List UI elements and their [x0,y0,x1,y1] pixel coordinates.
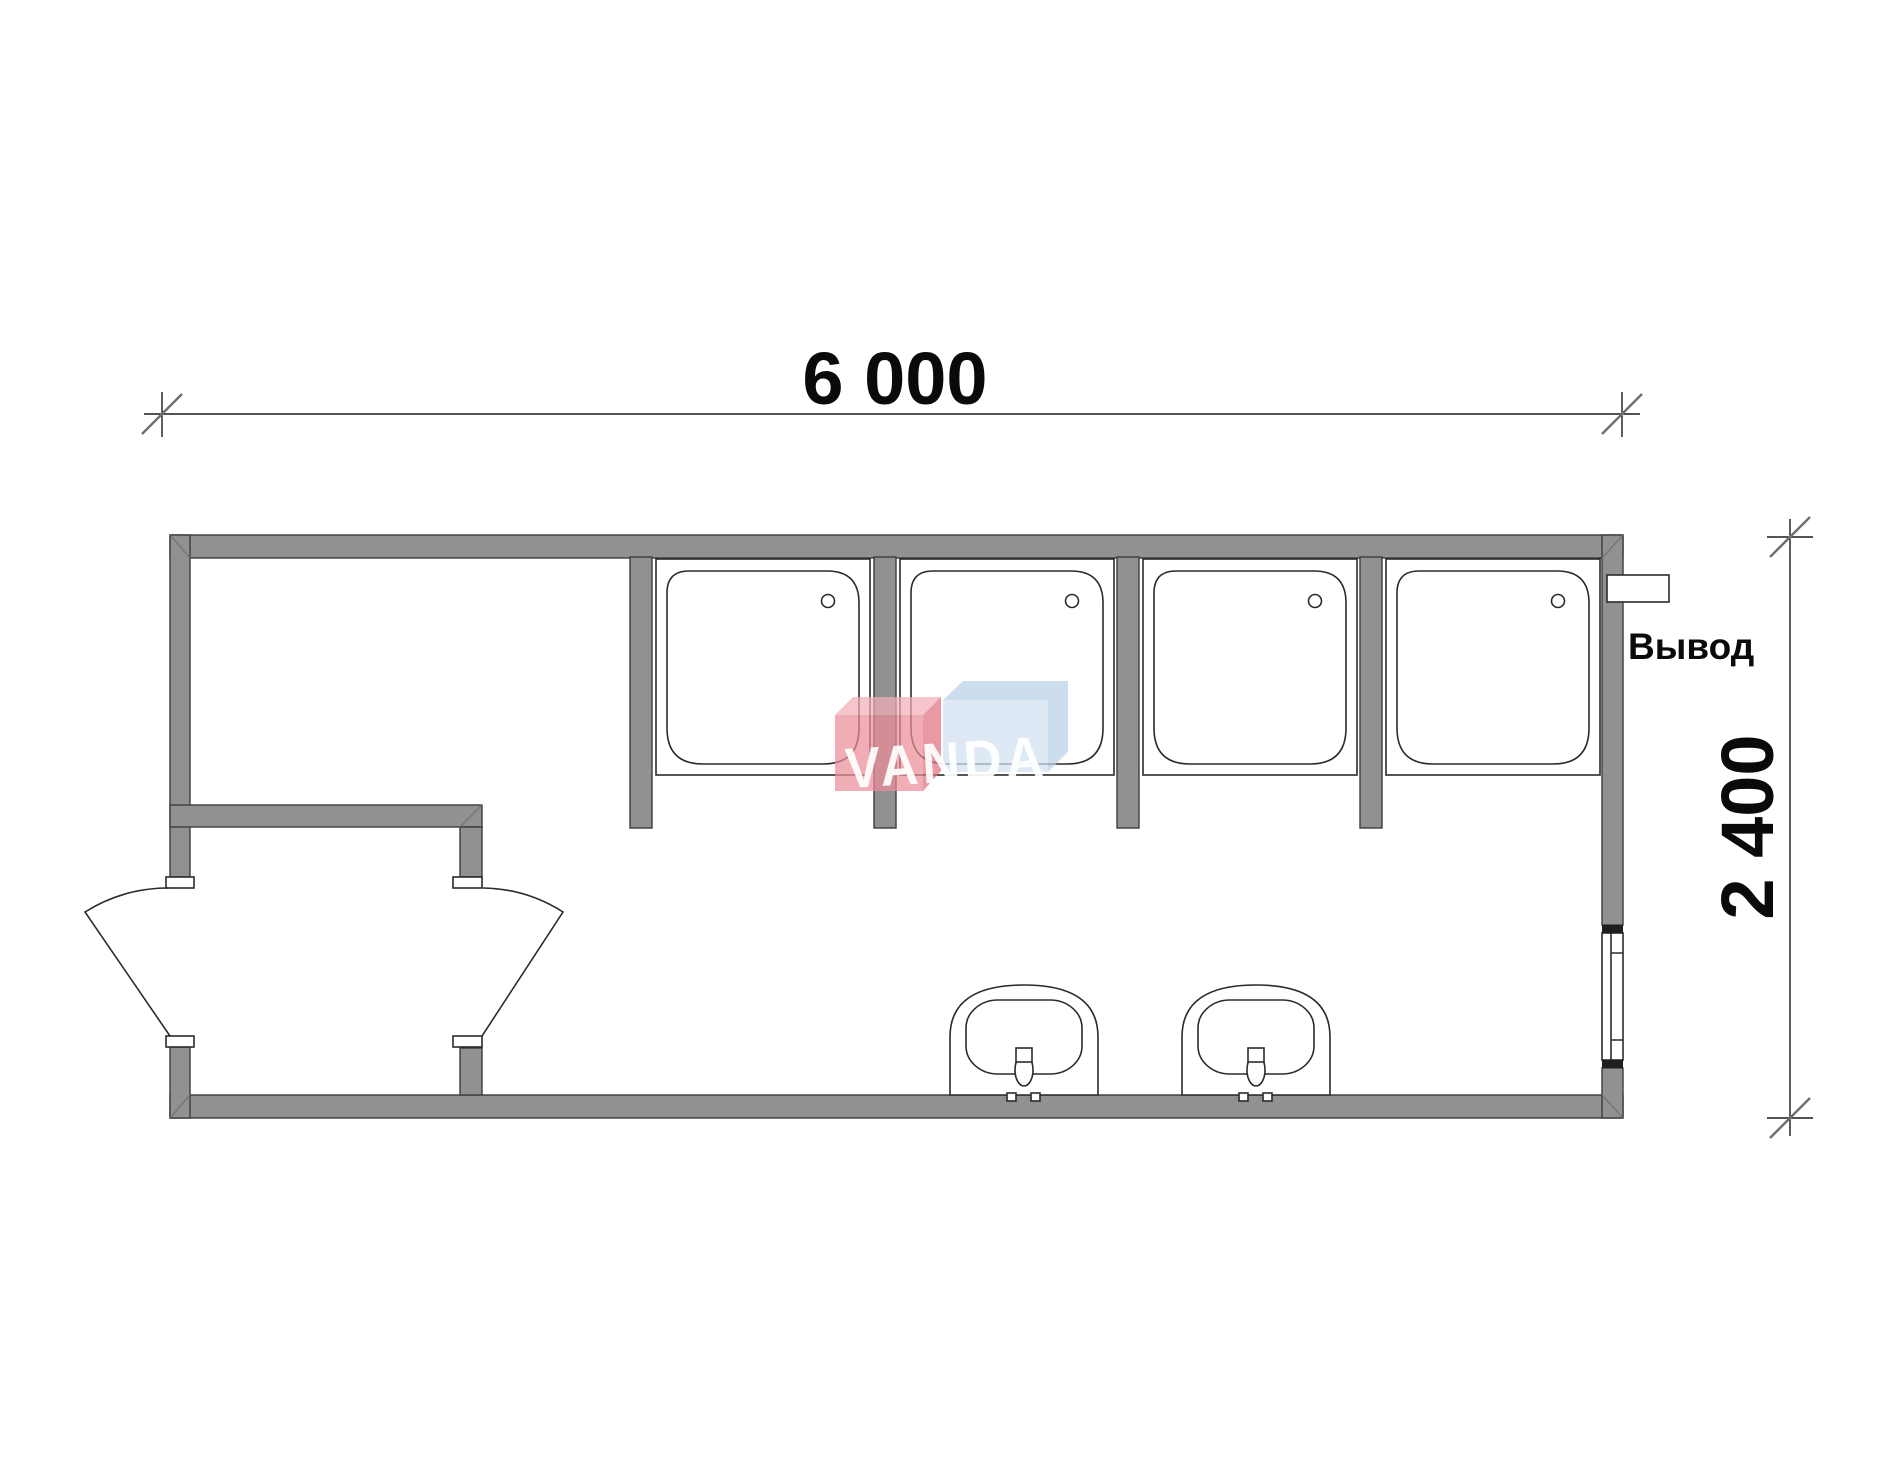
utility-outlet [1607,575,1669,602]
dimension-right: 2 400 [1706,517,1813,1138]
wall-vestibule-vertical-lower [460,1048,482,1095]
entrance-door-leaf-left [85,888,170,1036]
window-cap-bottom [1602,1060,1623,1068]
wall-vestibule-vertical-upper [460,827,482,877]
watermark-red-box-top [835,697,941,715]
wall-top [170,535,1623,558]
door-jamb [166,877,194,888]
dimension-width-value: 6 000 [802,337,987,420]
floor-plan-svg: Вывод 6 000 2 400 VANDA [0,0,1899,1481]
door-jamb [166,1036,194,1047]
watermark-blue-box-top [943,681,1068,700]
door-jamb [453,877,482,888]
vestibule-door-leaf-right [482,888,563,1036]
window-frame [1602,933,1623,1060]
dimension-top: 6 000 [142,337,1642,437]
shower-partition-3 [1117,557,1139,828]
wall-bottom [170,1095,1623,1118]
shower-partition-4 [1360,557,1382,828]
wall-right-lower [1602,1068,1623,1118]
window-cap-top [1602,925,1623,933]
shower-cubicle-3 [1143,559,1357,775]
floor-plan-page: Вывод 6 000 2 400 VANDA [0,0,1899,1481]
door-jambs [166,877,482,1047]
shower-cubicle-4 [1386,559,1600,775]
door-jamb [453,1036,482,1047]
shower-partition-1 [630,557,652,828]
wall-vestibule-horizontal [170,805,482,827]
sink-1 [950,985,1098,1101]
sink-2 [1182,985,1330,1101]
wall-left-lower [170,1047,190,1118]
window [1602,925,1623,1068]
dimension-height-value: 2 400 [1706,734,1789,919]
outlet-label: Вывод [1628,626,1754,667]
watermark-text: VANDA [843,725,1049,801]
watermark: VANDA [835,681,1068,801]
